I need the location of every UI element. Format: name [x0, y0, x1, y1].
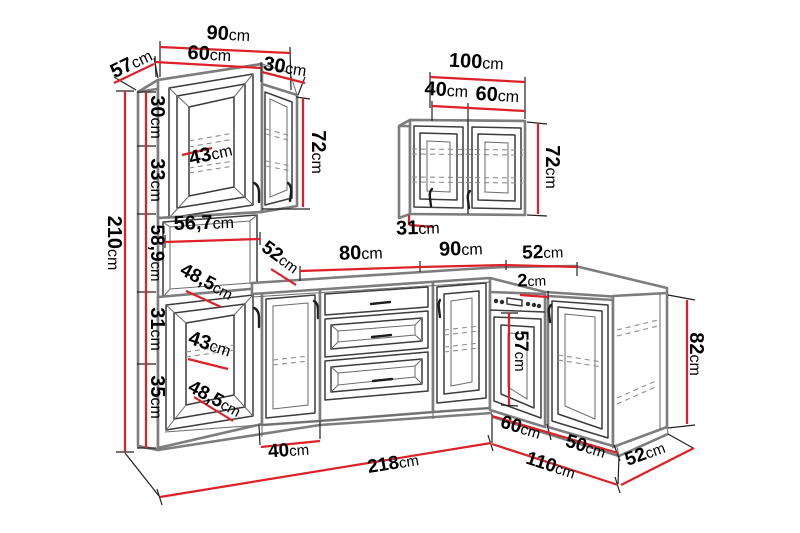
dimension-label-counter-90: 90cm	[439, 237, 483, 261]
end-side-panel	[613, 293, 667, 447]
base-cabinet-40	[262, 289, 320, 425]
dimension-label-top-width-90: 90cm	[206, 22, 251, 46]
dimension-label-depth-57: 57cm	[107, 44, 156, 83]
dimension-label-bottom-110: 110cm	[523, 448, 578, 484]
dimension-label-segment-35: 35cm	[146, 375, 168, 419]
dimension-label-wall-depth-31: 31cm	[396, 216, 440, 240]
dimension-line-wall-width-40-60	[432, 106, 525, 111]
dimension-label-counter-52: 52cm	[522, 241, 564, 263]
diagram-canvas: 90cm60cm30cm57cm30cm33cm58,9cm31cm35cm21…	[0, 0, 800, 533]
dimension-label-width-218: 218cm	[366, 449, 420, 478]
dimension-label-oven-57: 57cm	[510, 330, 531, 371]
dimension-label-segment-33: 33cm	[146, 158, 168, 202]
dimension-label-interior-56-7: 56,7cm	[173, 211, 234, 235]
sink-cabinet	[433, 277, 490, 412]
corner-cabinet-door	[548, 296, 613, 446]
dimension-line-counter-80	[300, 267, 420, 271]
kitchen-dimensions-diagram: 90cm60cm30cm57cm30cm33cm58,9cm31cm35cm21…	[0, 0, 800, 533]
tall-cabinet-30-section	[262, 64, 297, 212]
dimension-label-height-82: 82cm	[685, 332, 707, 376]
dimension-label-depth-52-left: 52cm	[257, 237, 303, 278]
dimension-label-top-width-30: 30cm	[262, 53, 308, 82]
dimension-label-segment-58-9: 58,9cm	[146, 225, 167, 282]
dimension-label-wall-width-40: 40cm	[424, 78, 469, 102]
dimension-label-top-width-60: 60cm	[187, 42, 232, 66]
dimension-label-height-72-left: 72cm	[307, 130, 329, 174]
wall-cabinet-100	[399, 120, 525, 218]
dimension-label-width-40-base: 40cm	[267, 439, 310, 463]
dimension-label-gap-2: 2cm	[517, 270, 546, 291]
dimension-label-wall-width-60: 60cm	[475, 83, 520, 107]
dimension-label-counter-80: 80cm	[339, 241, 383, 265]
dimension-label-wall-width-100: 100cm	[448, 50, 504, 75]
dimension-line-interior-56-7	[165, 239, 260, 242]
dimension-label-height-210: 210cm	[103, 216, 125, 271]
dimension-line-width-218	[160, 443, 491, 497]
dimension-label-segment-30: 30cm	[146, 95, 168, 139]
dimension-label-segment-31: 31cm	[146, 307, 168, 351]
dimension-label-wall-height-72: 72cm	[541, 145, 563, 189]
drawer-unit-80	[320, 281, 433, 421]
